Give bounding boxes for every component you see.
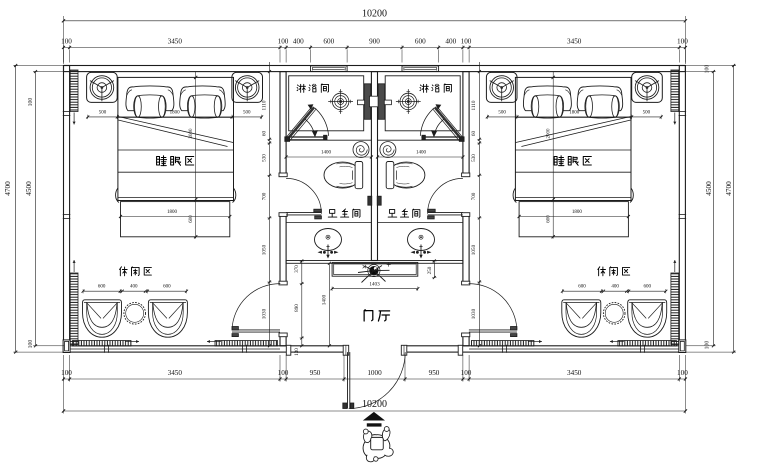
svg-text:1800: 1800 (572, 210, 583, 215)
svg-text:1000: 1000 (367, 369, 382, 377)
svg-text:1030: 1030 (471, 308, 477, 319)
svg-text:60: 60 (261, 131, 267, 137)
svg-text:600: 600 (644, 285, 652, 290)
svg-text:100: 100 (28, 340, 34, 349)
svg-text:1403: 1403 (369, 281, 380, 287)
svg-text:600: 600 (323, 38, 334, 46)
svg-text:890: 890 (294, 304, 300, 312)
svg-text:1800: 1800 (569, 111, 580, 116)
svg-text:100: 100 (278, 369, 289, 377)
svg-text:1050: 1050 (471, 244, 477, 255)
svg-text:950: 950 (310, 369, 321, 377)
svg-text:1110: 1110 (261, 100, 267, 110)
svg-text:700: 700 (261, 192, 267, 200)
svg-text:4700: 4700 (4, 181, 12, 196)
svg-text:250: 250 (427, 266, 433, 274)
svg-text:3450: 3450 (567, 369, 582, 377)
svg-text:60: 60 (471, 131, 477, 137)
svg-text:3450: 3450 (168, 38, 183, 46)
svg-text:600: 600 (578, 285, 586, 290)
svg-text:600: 600 (415, 38, 426, 46)
svg-text:500: 500 (498, 111, 506, 116)
svg-text:400: 400 (611, 285, 619, 290)
svg-text:1050: 1050 (261, 244, 267, 255)
svg-text:1800: 1800 (170, 111, 181, 116)
svg-text:100: 100 (705, 341, 711, 350)
svg-text:130: 130 (294, 348, 300, 356)
svg-text:600: 600 (547, 215, 552, 223)
svg-text:2000: 2000 (189, 128, 194, 139)
svg-text:500: 500 (243, 111, 251, 116)
svg-text:10200: 10200 (362, 399, 387, 410)
svg-text:530: 530 (471, 154, 477, 162)
svg-text:100: 100 (461, 38, 472, 46)
svg-text:3450: 3450 (567, 38, 582, 46)
svg-text:1800: 1800 (167, 210, 178, 215)
svg-text:1110: 1110 (471, 100, 477, 110)
svg-text:3450: 3450 (168, 369, 183, 377)
svg-text:500: 500 (99, 111, 107, 116)
svg-text:100: 100 (28, 98, 34, 107)
svg-text:950: 950 (429, 369, 440, 377)
svg-text:4500: 4500 (25, 181, 33, 196)
svg-text:100: 100 (61, 38, 72, 46)
svg-text:100: 100 (61, 369, 72, 377)
svg-text:100: 100 (677, 369, 688, 377)
svg-text:400: 400 (445, 38, 456, 46)
svg-text:100: 100 (461, 369, 472, 377)
svg-text:600: 600 (189, 215, 194, 223)
svg-text:900: 900 (369, 38, 380, 46)
svg-text:700: 700 (471, 192, 477, 200)
svg-text:100: 100 (677, 38, 688, 46)
svg-text:10200: 10200 (362, 9, 387, 20)
svg-text:4500: 4500 (705, 181, 713, 196)
svg-text:1030: 1030 (261, 308, 267, 319)
svg-text:1400: 1400 (416, 151, 427, 156)
svg-text:530: 530 (261, 154, 267, 162)
svg-text:2000: 2000 (547, 128, 552, 139)
svg-text:400: 400 (293, 38, 304, 46)
svg-text:600: 600 (163, 285, 171, 290)
svg-text:1400: 1400 (321, 151, 332, 156)
svg-text:400: 400 (130, 285, 138, 290)
svg-text:600: 600 (98, 285, 106, 290)
svg-text:1400: 1400 (322, 294, 328, 305)
svg-text:100: 100 (705, 65, 711, 74)
svg-text:100: 100 (278, 38, 289, 46)
svg-text:370: 370 (294, 265, 300, 273)
svg-text:4700: 4700 (725, 181, 733, 196)
svg-text:500: 500 (643, 111, 651, 116)
